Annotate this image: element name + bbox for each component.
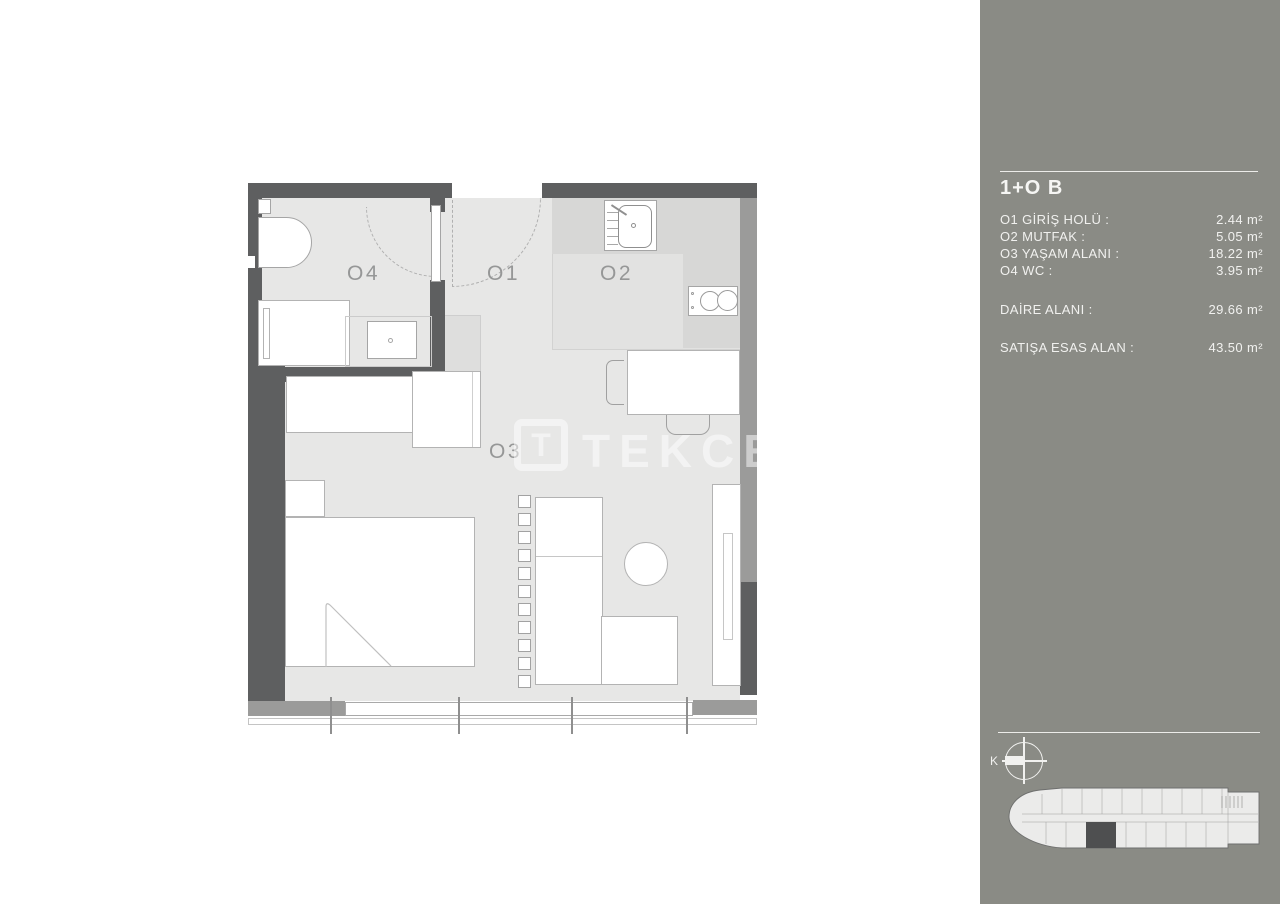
shelf-square (518, 657, 531, 670)
wall-top-left (248, 183, 452, 198)
shelf-square (518, 495, 531, 508)
window-mullion (330, 697, 332, 734)
footer-divider (998, 732, 1260, 733)
dining-chair-left (606, 360, 624, 405)
room-label-o4: O4 (347, 262, 380, 286)
building-footprint (1006, 780, 1262, 854)
highlighted-unit (1086, 822, 1116, 848)
area-row-value: 18.22 m² (1208, 246, 1263, 261)
cooktop-burner (717, 290, 738, 311)
sink-drain (631, 223, 636, 228)
bed-fold-lines (285, 517, 475, 667)
wall-right-dark-segment (740, 582, 757, 695)
wall-niche (246, 256, 255, 268)
title-divider-top (1000, 171, 1258, 172)
sofa-vertical-section (535, 497, 603, 685)
compass-west-bar (1005, 756, 1024, 765)
shelf-square (518, 585, 531, 598)
wardrobe-right (412, 371, 481, 448)
toilet-cistern (258, 199, 271, 214)
wardrobe-door-line (472, 372, 473, 447)
round-coffee-table (624, 542, 668, 586)
sink-drainboard (607, 212, 618, 245)
washbasin-drain (388, 338, 393, 343)
gross-area-label: SATIŞA ESAS ALAN : (1000, 340, 1134, 355)
shelf-square (518, 531, 531, 544)
total-area-label: DAİRE ALANI : (1000, 302, 1093, 317)
unit-type-title: 1+O B (1000, 177, 1063, 200)
shelf-square (518, 603, 531, 616)
wardrobe-left (286, 376, 433, 433)
shelf-square (518, 675, 531, 688)
sill-bottom-right (693, 700, 757, 715)
entry-closet-zone (443, 315, 481, 373)
gross-area-value: 43.50 m² (1208, 340, 1263, 355)
wall-right (740, 198, 757, 582)
shower-tray (258, 300, 350, 366)
total-area-value: 29.66 m² (1208, 302, 1263, 317)
cooktop-knob (691, 292, 694, 295)
watermark-text: TEKCE (582, 424, 783, 478)
window-sill-line (248, 718, 757, 725)
wall-top-right (542, 183, 757, 198)
shelf-square (518, 567, 531, 580)
o4-door-leaf (431, 205, 441, 282)
cooktop-knob (691, 306, 694, 309)
area-row: O2 MUTFAK : 5.05 m² (1000, 229, 1263, 244)
shelf-square (518, 621, 531, 634)
window-mullion (571, 697, 573, 734)
compass-north-label: K (990, 754, 998, 768)
area-row: O4 WC : 3.95 m² (1000, 263, 1263, 278)
shower-strip (263, 308, 270, 359)
window-mullion (458, 697, 460, 734)
area-row-label: O4 WC : (1000, 263, 1053, 278)
window-mullion (686, 697, 688, 734)
total-area-row: DAİRE ALANI : 29.66 m² (1000, 302, 1263, 317)
area-row-label: O3 YAŞAM ALANI : (1000, 246, 1119, 261)
page: O4 O1 O2 O3 T TEKCE 1+O B O1 GİRİŞ HOLÜ … (0, 0, 1280, 904)
nightstand (285, 480, 325, 517)
area-row-value: 3.95 m² (1216, 263, 1263, 278)
room-label-o2: O2 (600, 262, 633, 286)
toilet (258, 217, 312, 268)
floor-plan: O4 O1 O2 O3 T TEKCE (0, 0, 980, 904)
gross-area-row: SATIŞA ESAS ALAN : 43.50 m² (1000, 340, 1263, 355)
area-row-label: O1 GİRİŞ HOLÜ : (1000, 212, 1109, 227)
compass-vline (1023, 737, 1025, 784)
compass-icon: K (980, 0, 1280, 904)
compass-hline (1002, 760, 1047, 762)
watermark-logo-letter: T (531, 427, 551, 464)
entry-door-leaf-dashed (452, 200, 454, 287)
room-label-o1: O1 (487, 262, 520, 286)
area-row: O1 GİRİŞ HOLÜ : 2.44 m² (1000, 212, 1263, 227)
shelf-square (518, 639, 531, 652)
shelf-square (518, 549, 531, 562)
area-row-value: 5.05 m² (1216, 229, 1263, 244)
dining-table (627, 350, 740, 415)
area-row: O3 YAŞAM ALANI : 18.22 m² (1000, 246, 1263, 261)
tv-screen (723, 533, 733, 640)
wall-left-lower (248, 363, 285, 701)
area-row-label: O2 MUTFAK : (1000, 229, 1085, 244)
sofa-cushion-line (536, 556, 602, 557)
compass-circle (1005, 742, 1043, 780)
area-row-value: 2.44 m² (1216, 212, 1263, 227)
info-sidebar: 1+O B O1 GİRİŞ HOLÜ : 2.44 m² O2 MUTFAK … (980, 0, 1280, 904)
watermark-logo: T (514, 419, 568, 471)
shelf-square (518, 513, 531, 526)
wall-o4-partition-bottom (430, 280, 445, 382)
window-frame (345, 702, 693, 716)
sofa-chaise-section (601, 616, 678, 685)
